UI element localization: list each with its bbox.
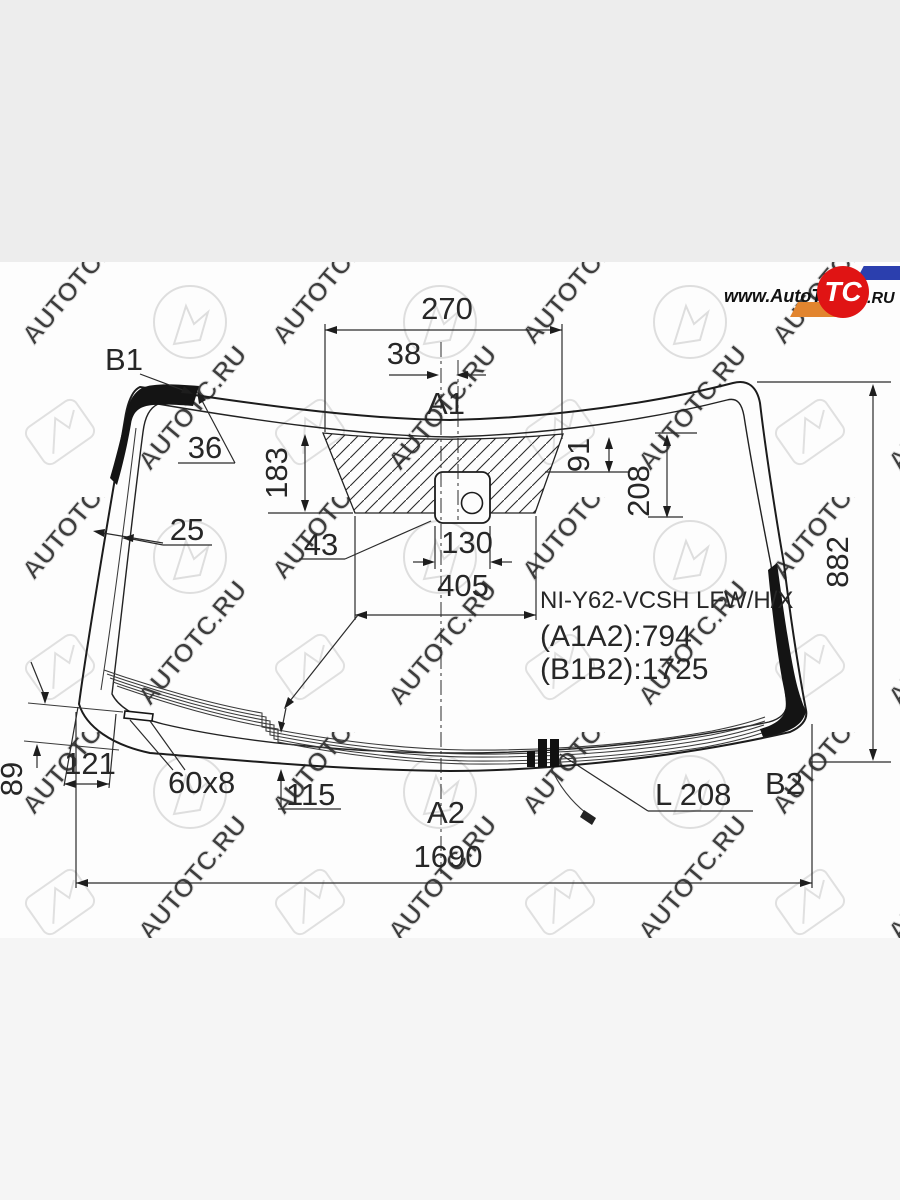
svg-text:1690: 1690 [414, 839, 483, 874]
svg-text:115: 115 [286, 777, 335, 812]
part-code: NI-Y62-VCSH LFW/H/X [540, 587, 793, 614]
svg-text:60x8: 60x8 [168, 765, 235, 800]
svg-text:38: 38 [387, 336, 421, 371]
svg-text:130: 130 [441, 525, 493, 560]
svg-text:25: 25 [170, 512, 204, 547]
svg-text:L 208: L 208 [655, 777, 731, 812]
svg-text:89: 89 [0, 762, 29, 796]
logo-circle-text: TC [824, 276, 861, 308]
svg-text:183: 183 [259, 447, 294, 499]
bottom-gray-bar [0, 938, 900, 1200]
svg-text:91: 91 [561, 438, 596, 472]
windshield-drawing-area: AUTOTC.RU AUTOTC.RU [0, 262, 900, 938]
label-b1: B1 [105, 342, 143, 377]
svg-text:270: 270 [421, 291, 473, 326]
svg-text:121: 121 [64, 746, 116, 781]
mirror-bracket [435, 472, 490, 523]
autotc-logo: www.AutoT TC .RU [720, 262, 900, 322]
svg-text:36: 36 [188, 430, 222, 465]
label-a2: A2 [427, 795, 465, 830]
windshield-diagram: AUTOTC.RU AUTOTC.RU [0, 262, 900, 938]
bracket-hole [462, 493, 483, 514]
screenshot-root: AUTOTC.RU AUTOTC.RU [0, 0, 900, 1200]
label-a1: A1 [427, 386, 465, 421]
logo-text-right: .RU [867, 290, 895, 308]
svg-text:208: 208 [621, 465, 656, 517]
svg-text:43: 43 [304, 527, 338, 562]
part-b1b2: (B1B2):1725 [540, 653, 708, 686]
part-a1a2: (A1A2):794 [540, 620, 692, 653]
top-gray-bar [0, 0, 900, 262]
svg-text:405: 405 [437, 568, 489, 603]
logo-text-left: www.AutoT [724, 286, 822, 307]
logo-red-circle: TC [817, 266, 869, 318]
svg-text:882: 882 [820, 536, 855, 588]
label-b2: B2 [765, 766, 803, 801]
